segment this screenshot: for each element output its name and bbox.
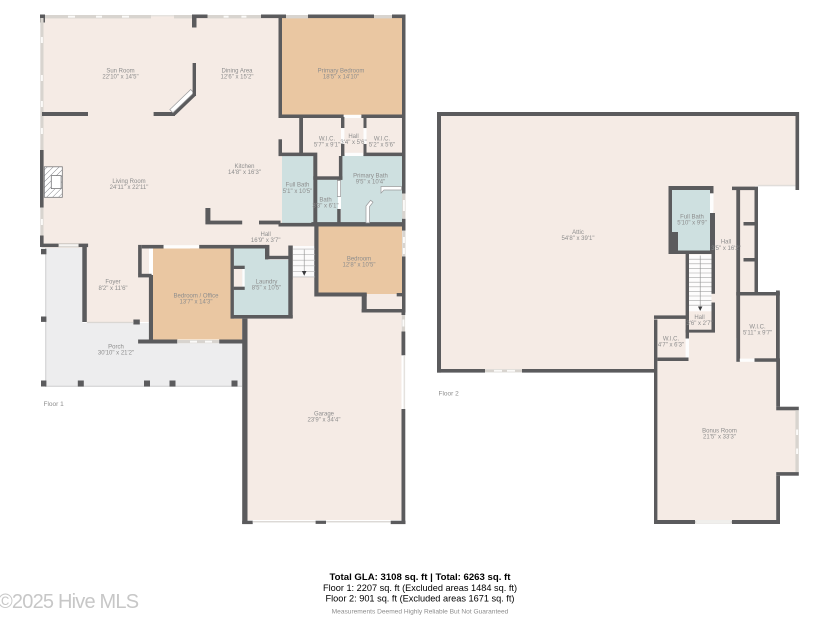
svg-text:Total GLA: 3108 sq. ft | Total: Total GLA: 3108 sq. ft | Total: 6263 sq.… [330, 572, 512, 583]
svg-text:5'2" x 5'6": 5'2" x 5'6" [369, 143, 395, 149]
svg-text:Measurements Deemed Highly Rel: Measurements Deemed Highly Reliable But … [332, 609, 509, 616]
svg-text:Bedroom / Office: Bedroom / Office [174, 293, 220, 299]
svg-text:8'5" x 10'5": 8'5" x 10'5" [252, 286, 282, 292]
svg-text:21'5" x 33'3": 21'5" x 33'3" [703, 435, 736, 441]
svg-text:W.I.C.: W.I.C. [749, 324, 766, 330]
svg-text:Bonus Room: Bonus Room [702, 428, 737, 434]
svg-text:4'7" x 6'3": 4'7" x 6'3" [658, 343, 684, 349]
svg-text:Attic: Attic [572, 230, 584, 236]
svg-text:Bedroom: Bedroom [347, 257, 371, 263]
svg-text:9'5" x 10'4": 9'5" x 10'4" [356, 180, 386, 186]
svg-text:3'4" x 5'6": 3'4" x 5'6" [340, 140, 366, 146]
svg-text:Hall: Hall [721, 240, 731, 246]
svg-text:3'5" x 16'2": 3'5" x 16'2" [711, 246, 741, 252]
svg-text:13'7" x 14'3": 13'7" x 14'3" [180, 300, 213, 306]
svg-text:Floor 2: Floor 2 [439, 391, 460, 398]
svg-text:Kitchen: Kitchen [234, 164, 254, 170]
svg-text:Garage: Garage [314, 412, 335, 418]
svg-text:18'5" x 14'10": 18'5" x 14'10" [323, 75, 359, 81]
svg-text:Dining Area: Dining Area [221, 69, 253, 75]
svg-text:12'6" x 15'2": 12'6" x 15'2" [221, 75, 254, 81]
svg-text:5'1" x 10'5": 5'1" x 10'5" [283, 189, 313, 195]
svg-text:5'11" x 9'7": 5'11" x 9'7" [743, 331, 772, 337]
svg-text:5'7" x 9'1": 5'7" x 9'1" [314, 143, 340, 149]
svg-text:3'6" x 2'7": 3'6" x 2'7" [686, 321, 712, 327]
svg-text:22'10" x 14'5": 22'10" x 14'5" [102, 75, 138, 81]
svg-text:W.I.C.: W.I.C. [663, 337, 680, 343]
svg-text:Hall: Hall [261, 232, 271, 238]
svg-text:8'2" x 11'6": 8'2" x 11'6" [98, 286, 127, 292]
svg-text:Floor 2: 901 sq. ft (Excluded: Floor 2: 901 sq. ft (Excluded areas 1671… [326, 594, 515, 604]
svg-text:23'9" x 34'4": 23'9" x 34'4" [308, 418, 341, 424]
svg-text:Primary Bath: Primary Bath [353, 174, 388, 180]
svg-text:Laundry: Laundry [256, 280, 278, 286]
svg-text:Foyer: Foyer [105, 280, 120, 286]
svg-text:5'10" x 9'9": 5'10" x 9'9" [677, 221, 707, 227]
svg-text:16'9" x 3'7": 16'9" x 3'7" [251, 238, 281, 244]
svg-text:Primary Bedroom: Primary Bedroom [318, 69, 365, 75]
svg-text:W.I.C.: W.I.C. [374, 137, 391, 143]
svg-text:Floor 1: Floor 1 [44, 401, 65, 408]
svg-text:24'11" x 22'11": 24'11" x 22'11" [110, 185, 149, 191]
svg-text:Full Bath: Full Bath [680, 215, 704, 221]
svg-text:Porch: Porch [108, 344, 124, 350]
svg-text:Hall: Hall [348, 134, 358, 140]
svg-text:3'3" x 6'1": 3'3" x 6'1" [312, 204, 338, 210]
svg-text:14'8" x 16'3": 14'8" x 16'3" [228, 170, 261, 176]
svg-text:Sun Room: Sun Room [106, 69, 134, 75]
svg-text:12'8" x 10'5": 12'8" x 10'5" [343, 263, 376, 269]
svg-text:©2025 Hive MLS: ©2025 Hive MLS [0, 591, 139, 613]
svg-text:Hall: Hall [694, 315, 704, 321]
svg-text:Living Room: Living Room [112, 179, 145, 185]
svg-text:54'8" x 39'1": 54'8" x 39'1" [562, 236, 595, 242]
svg-text:30'10" x 21'2": 30'10" x 21'2" [98, 351, 134, 357]
svg-text:W.I.C.: W.I.C. [319, 137, 336, 143]
svg-text:Bath: Bath [319, 198, 331, 204]
svg-text:Floor 1: 2207 sq. ft (Excluded: Floor 1: 2207 sq. ft (Excluded areas 148… [323, 583, 517, 593]
svg-text:Full Bath: Full Bath [286, 183, 310, 189]
